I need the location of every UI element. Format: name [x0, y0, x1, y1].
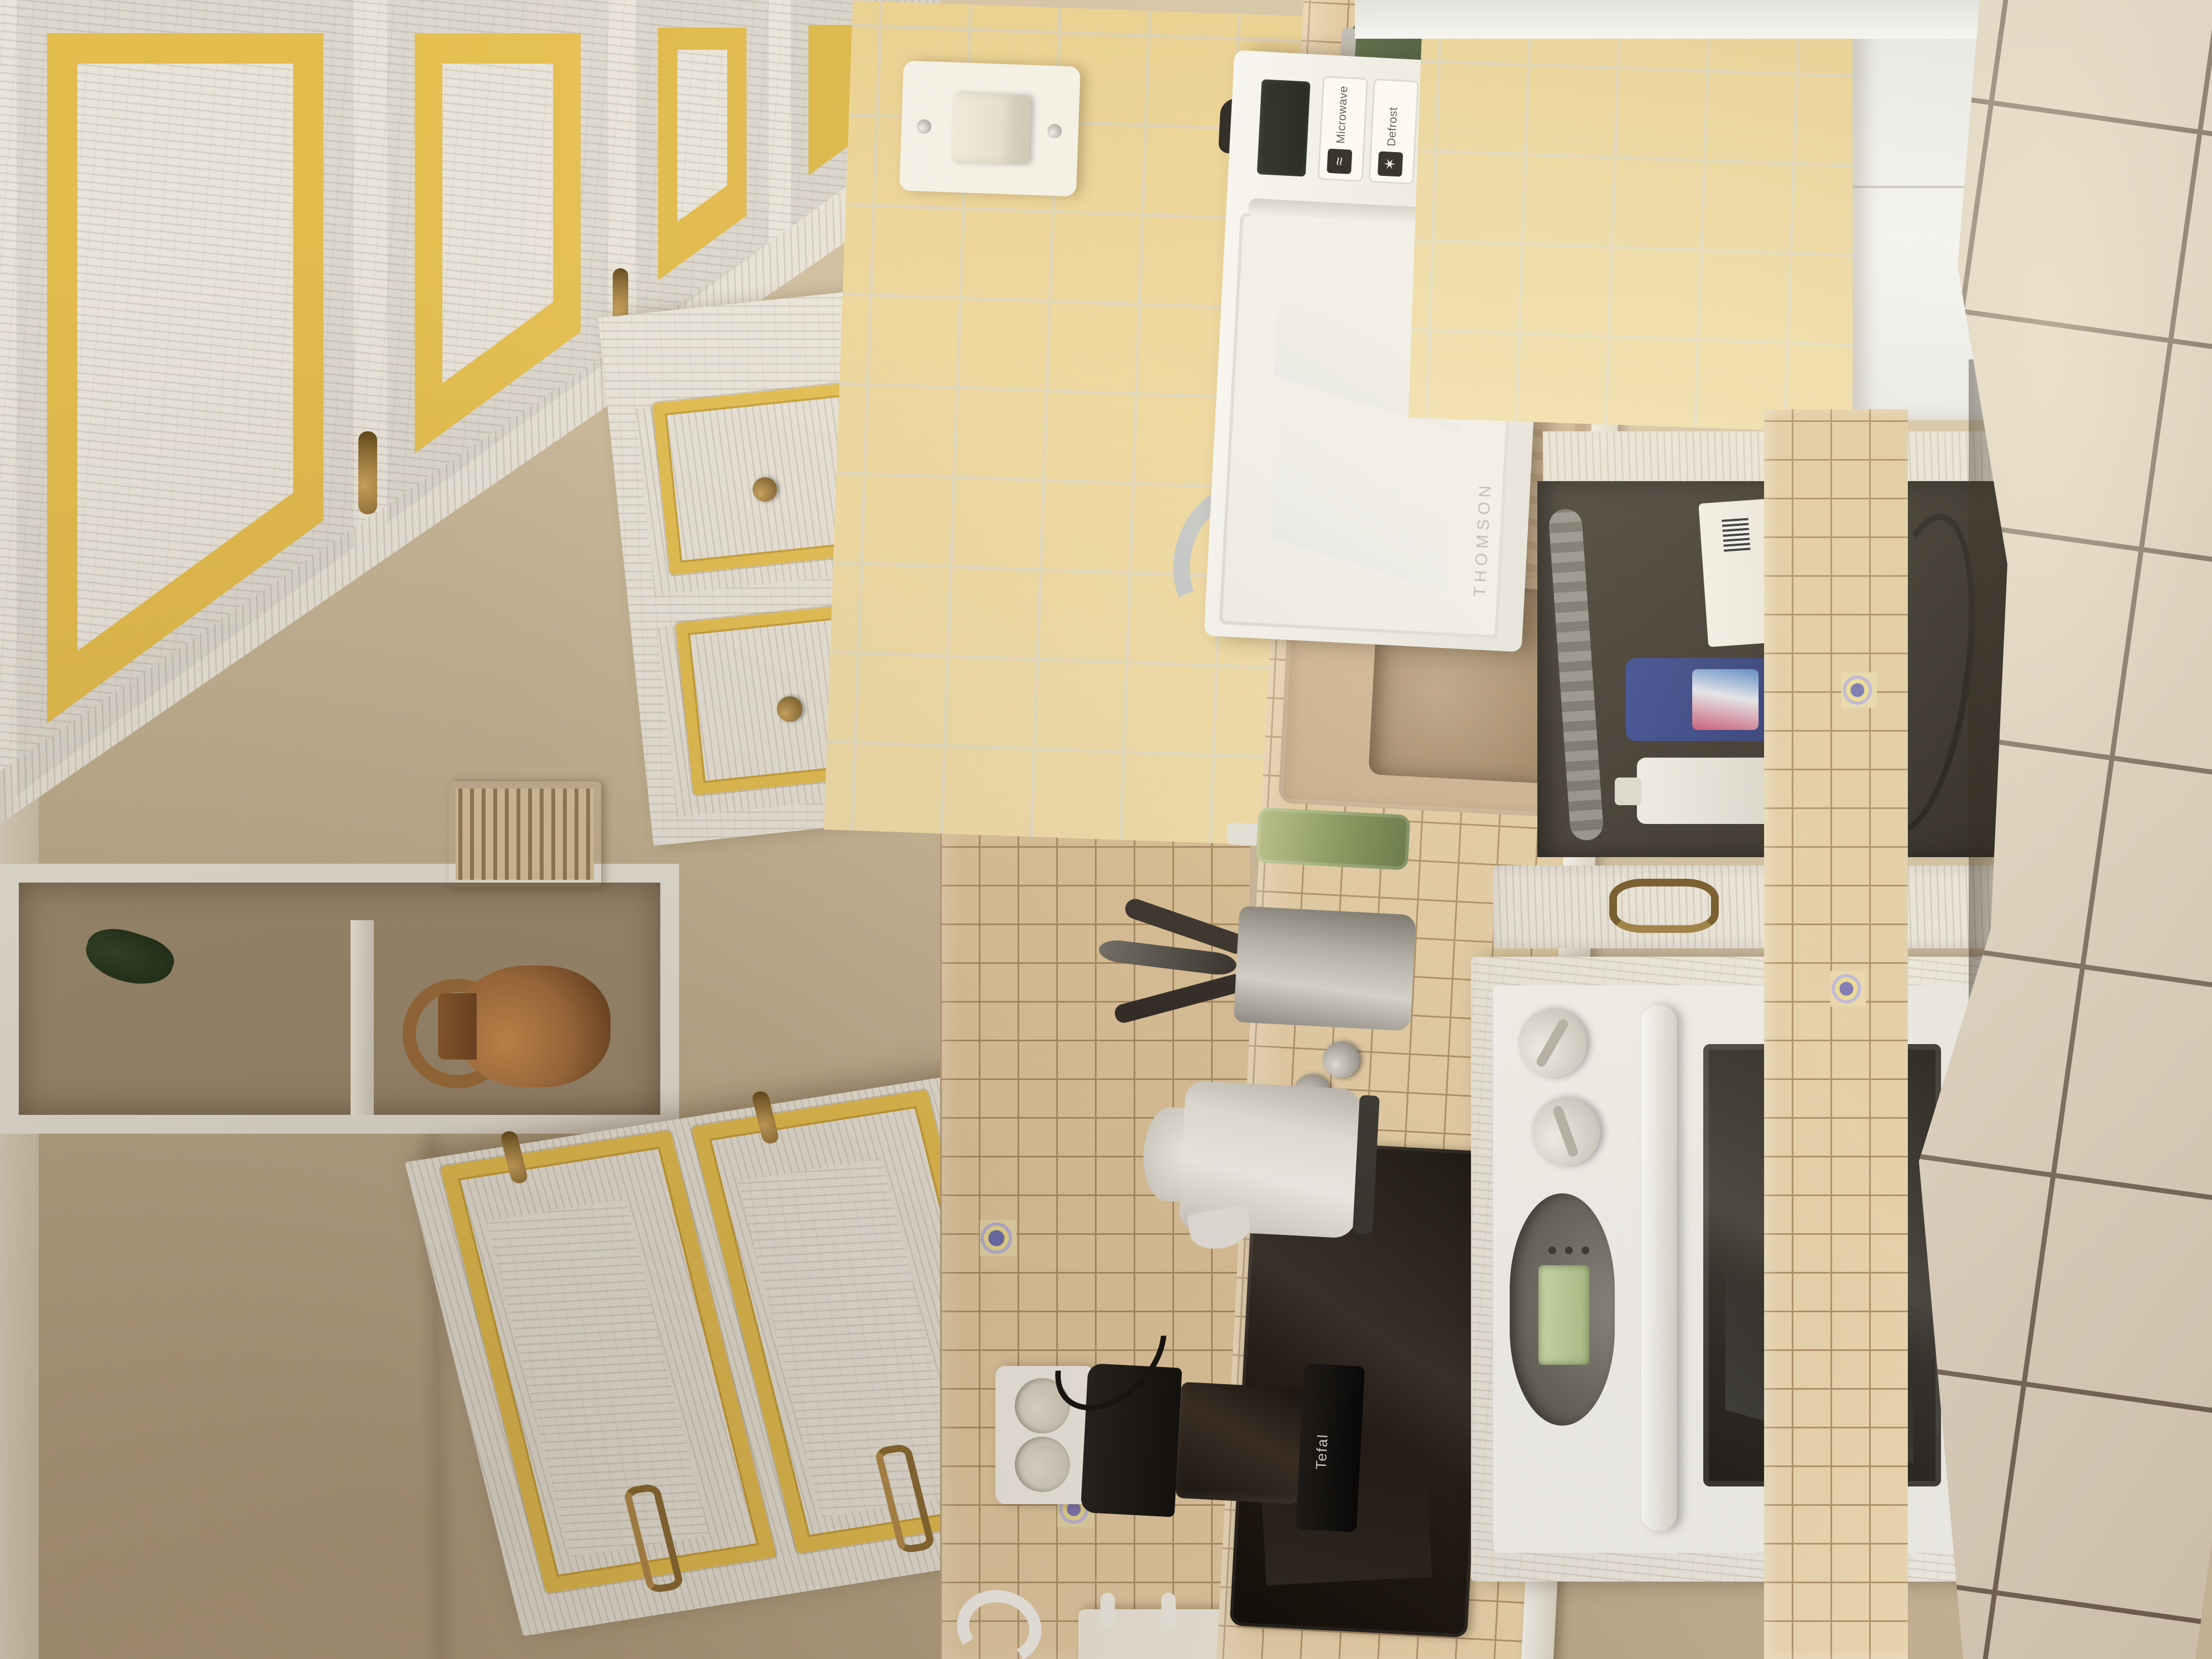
- oven-lcd: [1538, 1265, 1589, 1365]
- shelf-board: [351, 920, 374, 1115]
- soap-body: [1256, 807, 1411, 870]
- oven-knob-slot: [1535, 1018, 1570, 1068]
- switch-screw: [1047, 124, 1062, 139]
- floor-decorative-tile: [1841, 672, 1877, 708]
- microwave-button-label: Defrost: [1385, 107, 1401, 147]
- detergent-label: [1692, 669, 1759, 730]
- oven-display-recess: [1510, 1193, 1615, 1426]
- open-cabinet-shelf: [0, 864, 679, 1134]
- dish-soap-bottle: [1225, 806, 1411, 870]
- air-vent-grille: [448, 781, 602, 888]
- drop-bail-handle: [1609, 879, 1719, 933]
- microwave-brand: THOMSON: [1470, 481, 1495, 597]
- decorative-motif-tile: [980, 1220, 1016, 1256]
- hinge: [358, 431, 377, 514]
- microwave-button: ✶ Defrost: [1368, 79, 1419, 185]
- oven-indicator-dot: [1582, 1246, 1589, 1254]
- oven-knob: [1532, 1097, 1600, 1166]
- oven-knob: [1519, 1009, 1587, 1077]
- soap-cap: [1226, 822, 1260, 846]
- photo-canvas: Tefal: [0, 0, 2212, 1659]
- electric-kettle: [1139, 1067, 1391, 1251]
- kitchen-scene-upright: Tefal: [0, 0, 2212, 1659]
- switch-rocker: [951, 93, 1031, 165]
- microwave-button: ≈ Microwave: [1317, 76, 1368, 182]
- oven-handle: [1641, 1005, 1677, 1531]
- microwave-power-icon: ≈: [1327, 149, 1352, 174]
- drain-hose: [1548, 508, 1604, 842]
- microwave-display: [1257, 79, 1311, 176]
- switch-screw: [917, 119, 932, 134]
- copper-jug-neck: [438, 993, 477, 1060]
- barcode: [1721, 517, 1750, 552]
- oven-knob-slot: [1552, 1105, 1579, 1158]
- oven-side-door: [1493, 865, 2007, 948]
- coffee-carafe: [1175, 1382, 1308, 1505]
- glass-reflection: [1271, 406, 1452, 592]
- defrost-icon: ✶: [1378, 151, 1403, 176]
- bottle-cap: [1615, 778, 1641, 805]
- shelf-leaf: [80, 920, 179, 994]
- rail-hook: [1100, 1593, 1115, 1626]
- copper-jug: [406, 954, 616, 1093]
- coffee-maker: Tefal: [1080, 1352, 1365, 1532]
- microwave-button-label: Microwave: [1334, 86, 1350, 144]
- oven-indicator-dot: [1565, 1246, 1573, 1254]
- utensil-holder: [1190, 898, 1417, 1031]
- floor-decorative-tile: [1830, 971, 1866, 1006]
- light-switch: [899, 60, 1081, 196]
- utensil-pot: [1234, 906, 1417, 1031]
- outlet-socket: [1015, 1437, 1070, 1492]
- oven-indicator-dot: [1548, 1246, 1556, 1254]
- lower-right-tiled-wall: [1408, 0, 1887, 434]
- copper-jug-body: [456, 966, 611, 1087]
- coffee-maker-brand: Tefal: [1312, 1433, 1331, 1470]
- built-in-oven: Brandt: [1493, 985, 2002, 1553]
- floor-small-tiles: [1764, 409, 1908, 1659]
